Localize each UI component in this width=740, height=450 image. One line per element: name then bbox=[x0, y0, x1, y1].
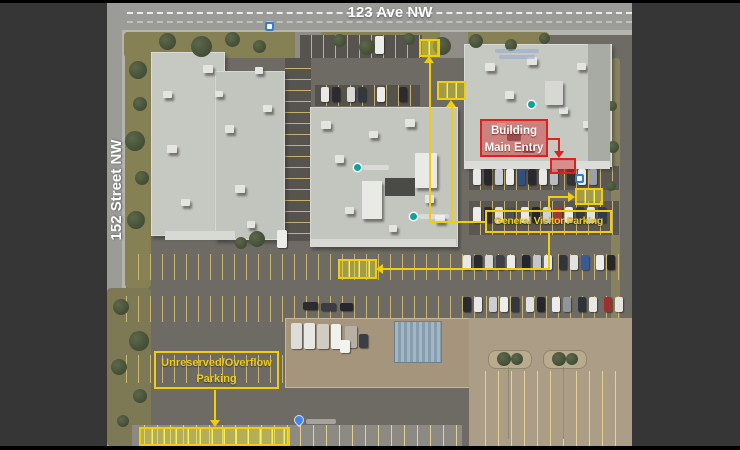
hvac-unit bbox=[203, 65, 213, 73]
car bbox=[500, 297, 508, 312]
hvac-unit bbox=[389, 225, 397, 232]
map-label-smudge bbox=[419, 214, 449, 219]
tree bbox=[359, 39, 375, 55]
car bbox=[604, 297, 612, 312]
tree bbox=[403, 33, 415, 45]
unreserved-overflow-label: Unreserved/Overflow Parking bbox=[154, 351, 279, 389]
street-label-123-ave: 123 Ave NW bbox=[310, 4, 470, 21]
bottom-black-bar bbox=[0, 446, 740, 450]
tree bbox=[117, 415, 129, 427]
connector-line bbox=[548, 196, 569, 198]
hvac-unit bbox=[345, 207, 354, 214]
car bbox=[321, 87, 329, 102]
arrowhead-up bbox=[446, 100, 456, 107]
car bbox=[484, 169, 492, 185]
unreserved-overflow-line1: Unreserved/Overflow bbox=[156, 355, 277, 371]
tree bbox=[253, 40, 266, 53]
hvac-unit bbox=[167, 145, 177, 153]
car bbox=[359, 334, 368, 348]
car bbox=[399, 87, 407, 102]
building-middle-walkway bbox=[310, 239, 456, 247]
connector-line bbox=[383, 268, 550, 270]
map-label-smudge bbox=[495, 49, 539, 53]
car bbox=[291, 323, 302, 349]
map-label-smudge bbox=[363, 165, 389, 170]
general-visitor-parking-label: General Visitor Parking bbox=[485, 210, 612, 233]
hvac-unit bbox=[577, 63, 586, 70]
tree bbox=[113, 299, 129, 315]
road-lane-dashes-2 bbox=[127, 21, 632, 23]
tree bbox=[133, 389, 147, 403]
car bbox=[559, 255, 567, 270]
connector-line bbox=[430, 221, 485, 223]
building-east-dark-section bbox=[588, 44, 610, 165]
tree bbox=[566, 353, 578, 365]
building-west-wing bbox=[151, 52, 225, 236]
bus-stop-icon bbox=[265, 22, 274, 31]
connector-line bbox=[451, 107, 453, 223]
building-middle-courtyard bbox=[385, 178, 415, 196]
tree bbox=[511, 353, 523, 365]
car bbox=[474, 297, 482, 312]
car bbox=[317, 324, 329, 349]
car bbox=[517, 169, 525, 185]
car bbox=[489, 297, 497, 312]
car bbox=[581, 255, 589, 270]
tree bbox=[235, 237, 247, 249]
map-label-smudge bbox=[499, 55, 535, 59]
hvac-unit bbox=[255, 67, 263, 74]
highlight-stall-box-a bbox=[419, 39, 440, 57]
highlight-overflow-strip bbox=[139, 427, 290, 446]
hvac-unit bbox=[369, 131, 378, 138]
car bbox=[321, 303, 336, 311]
hvac-unit bbox=[163, 91, 172, 98]
hvac-unit bbox=[335, 155, 344, 163]
tree bbox=[159, 33, 176, 50]
tree bbox=[129, 331, 149, 351]
tree bbox=[225, 32, 240, 47]
car bbox=[358, 87, 366, 102]
car bbox=[552, 297, 560, 312]
hvac-unit bbox=[505, 91, 514, 99]
tree bbox=[249, 231, 265, 247]
connector-line bbox=[429, 63, 431, 223]
street-label-152-street: 152 Street NW bbox=[108, 130, 124, 250]
tree bbox=[133, 97, 147, 111]
hvac-unit bbox=[321, 121, 331, 129]
arrowhead-left bbox=[376, 264, 383, 274]
car bbox=[596, 255, 604, 270]
lot-bottom-right-stalls bbox=[473, 371, 628, 446]
car bbox=[578, 297, 586, 312]
car bbox=[537, 297, 545, 312]
car bbox=[375, 36, 384, 54]
map-label-smudge bbox=[306, 419, 336, 424]
arrowhead-up bbox=[424, 56, 434, 63]
tree bbox=[469, 34, 483, 48]
car bbox=[277, 230, 287, 248]
car bbox=[589, 297, 597, 312]
car bbox=[377, 87, 385, 102]
car bbox=[340, 340, 350, 353]
building-east-walkway bbox=[464, 161, 610, 169]
tree bbox=[135, 171, 149, 185]
car bbox=[463, 297, 471, 312]
light-pole-2 bbox=[563, 367, 564, 439]
car bbox=[563, 297, 571, 312]
hvac-unit bbox=[225, 125, 234, 133]
hvac-unit bbox=[263, 105, 272, 112]
tree bbox=[125, 131, 145, 151]
car bbox=[539, 169, 547, 185]
building-main-entry-line1: Building bbox=[482, 123, 546, 140]
hvac-unit bbox=[215, 91, 223, 97]
slide-frame: 123 Ave NW 152 Street NW Building Main E… bbox=[0, 0, 740, 450]
car bbox=[526, 297, 534, 312]
car bbox=[332, 87, 340, 102]
tree bbox=[111, 359, 127, 375]
car bbox=[340, 303, 353, 311]
car bbox=[347, 87, 355, 102]
building-main-entry-line2: Main Entry bbox=[482, 140, 546, 157]
blue-roof-shed bbox=[394, 321, 442, 363]
building-main-entry-label: Building Main Entry bbox=[480, 119, 548, 157]
arrowhead-right bbox=[568, 192, 575, 202]
light-pole-1 bbox=[508, 367, 509, 439]
main-entry-highlight-box bbox=[550, 158, 576, 174]
red-arrowhead-down bbox=[554, 151, 564, 158]
highlight-stall-box-d bbox=[338, 259, 377, 279]
stall-column-mid bbox=[285, 58, 311, 241]
satellite-map: 123 Ave NW 152 Street NW Building Main E… bbox=[107, 3, 632, 446]
building-west-wing-2 bbox=[215, 71, 285, 240]
car bbox=[607, 255, 615, 270]
parking-pin-icon bbox=[293, 414, 304, 425]
tree bbox=[191, 36, 212, 57]
sign-icon bbox=[575, 174, 584, 183]
car bbox=[304, 323, 315, 349]
car bbox=[511, 297, 519, 312]
car bbox=[506, 169, 514, 185]
hvac-unit bbox=[559, 107, 568, 114]
tree bbox=[552, 352, 566, 366]
car bbox=[303, 302, 318, 310]
car bbox=[570, 255, 578, 270]
building-west-walkway bbox=[165, 231, 235, 240]
hvac-unit bbox=[181, 199, 190, 206]
tree bbox=[606, 181, 616, 191]
tree bbox=[497, 352, 511, 366]
building-middle-tower-2 bbox=[415, 153, 437, 188]
connector-line bbox=[214, 390, 216, 421]
place-pin-icon bbox=[354, 164, 361, 171]
hvac-unit bbox=[485, 63, 495, 71]
car bbox=[615, 297, 623, 312]
car bbox=[528, 169, 536, 185]
tree bbox=[333, 34, 346, 47]
tree bbox=[539, 33, 550, 44]
highlight-stall-box-b bbox=[437, 81, 466, 100]
tree bbox=[129, 61, 147, 79]
connector-line bbox=[548, 232, 550, 270]
place-pin-icon bbox=[528, 101, 535, 108]
car bbox=[473, 169, 481, 185]
connector-line bbox=[548, 197, 550, 211]
building-east-big-unit bbox=[545, 81, 563, 105]
car bbox=[589, 169, 597, 185]
hvac-unit bbox=[235, 185, 245, 193]
highlight-stall-box-c bbox=[575, 188, 603, 205]
car bbox=[495, 169, 503, 185]
unreserved-overflow-line2: Parking bbox=[156, 371, 277, 387]
hvac-unit bbox=[247, 221, 255, 228]
tree bbox=[127, 211, 145, 229]
hvac-unit bbox=[405, 119, 415, 127]
grass-left-strip bbox=[125, 43, 151, 288]
arrowhead-down bbox=[210, 420, 220, 427]
red-connector-line bbox=[558, 138, 560, 151]
building-middle-tower-1 bbox=[362, 181, 382, 219]
place-pin-icon bbox=[410, 213, 417, 220]
